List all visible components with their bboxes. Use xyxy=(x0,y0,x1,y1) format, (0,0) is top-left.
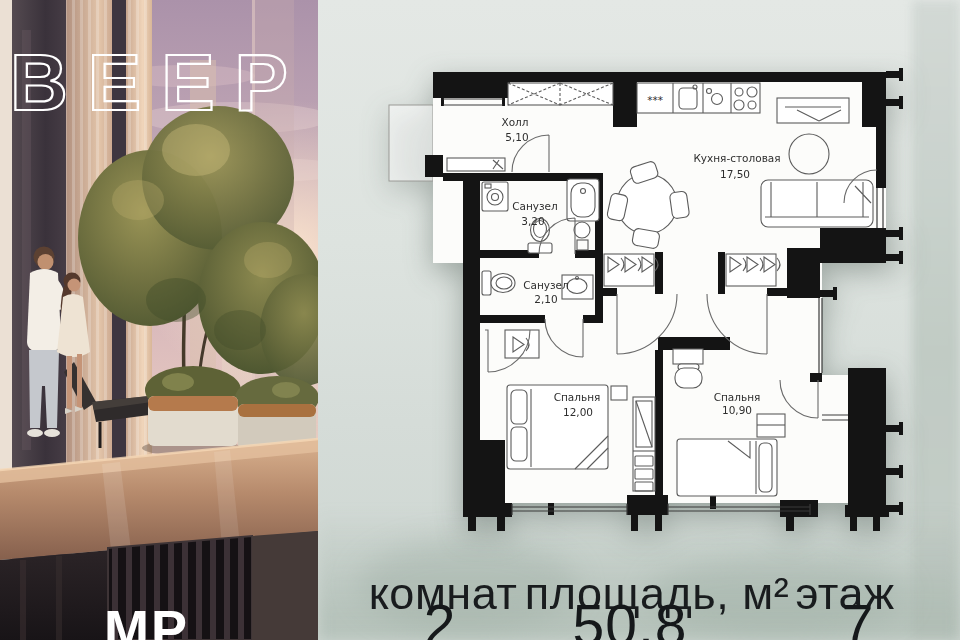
floor-plan: *** xyxy=(383,58,905,543)
floor-value: 7 xyxy=(842,597,875,640)
listing-card: МР ВЕЕР xyxy=(0,0,960,640)
developer-mark: МР xyxy=(104,599,189,640)
veer-logo: ВЕЕР xyxy=(10,38,308,127)
bathtub-icon xyxy=(567,179,599,221)
wardrobe-icon-right xyxy=(726,254,780,286)
kitchen-cabinets-icon: *** xyxy=(637,83,760,113)
bed-icon-2 xyxy=(677,439,777,496)
dresser-icon xyxy=(633,397,655,491)
entry-shelf-icon xyxy=(447,158,505,171)
building-photo: МР ВЕЕР xyxy=(0,0,318,640)
room-area: 17,50 xyxy=(720,168,750,180)
plan-panel: *** xyxy=(318,0,960,640)
room-name: Санузел xyxy=(523,279,569,291)
cabinet-icon xyxy=(757,414,785,437)
tv-stand-icon xyxy=(777,98,849,123)
room-area: 10,90 xyxy=(722,404,752,416)
wardrobe-icon-left xyxy=(604,254,658,286)
room-area: 5,10 xyxy=(505,131,528,143)
rooms-count-value: 2 xyxy=(424,597,457,640)
room-name: Кухня-столовая xyxy=(693,152,780,164)
nightstand-icon xyxy=(611,386,627,400)
hall-wardrobe-icon xyxy=(508,83,613,105)
room-name: Санузел xyxy=(512,200,558,212)
area-value: 50,8 xyxy=(573,597,688,640)
building-photo-panel: МР ВЕЕР xyxy=(0,0,318,640)
room-area: 2,10 xyxy=(534,293,557,305)
washing-machine-icon xyxy=(482,182,508,211)
room-name: Спальня xyxy=(554,391,601,403)
fridge-icon: *** xyxy=(647,94,663,106)
room-area: 3,20 xyxy=(521,215,544,227)
closet-icon xyxy=(505,330,539,358)
room-name: Холл xyxy=(501,116,528,128)
sofa-icon xyxy=(761,180,873,227)
room-area: 12,00 xyxy=(563,406,593,418)
sink-icon xyxy=(679,85,697,109)
room-name: Спальня xyxy=(714,391,761,403)
